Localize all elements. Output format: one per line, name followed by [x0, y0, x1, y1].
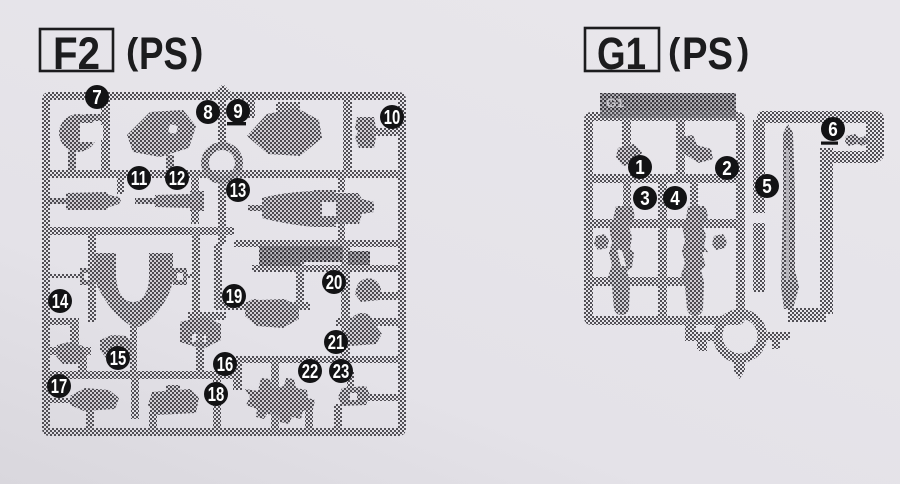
svg-text:18: 18	[208, 384, 225, 406]
svg-text:21: 21	[328, 332, 345, 354]
svg-text:PS: PS	[682, 28, 733, 79]
svg-text:3: 3	[640, 188, 650, 210]
svg-text:4: 4	[670, 188, 680, 210]
svg-text:G1: G1	[597, 28, 646, 79]
svg-text:23: 23	[333, 361, 350, 383]
svg-text:22: 22	[302, 361, 319, 383]
svg-text:1: 1	[635, 157, 645, 179]
svg-text:6: 6	[828, 119, 838, 141]
svg-text:16: 16	[217, 354, 234, 376]
svg-text:12: 12	[169, 168, 186, 190]
svg-text:PS: PS	[139, 28, 188, 79]
svg-text:8: 8	[203, 102, 213, 124]
svg-text:): )	[191, 31, 203, 72]
svg-text:G1: G1	[606, 96, 624, 110]
svg-text:7: 7	[92, 87, 102, 109]
svg-text:5: 5	[762, 176, 772, 198]
svg-text:F2: F2	[53, 28, 100, 79]
svg-text:14: 14	[52, 291, 69, 313]
svg-text:2: 2	[722, 158, 732, 180]
svg-text:9: 9	[233, 101, 243, 123]
svg-text:20: 20	[326, 272, 343, 294]
svg-text:(: (	[668, 31, 681, 72]
svg-text:15: 15	[110, 348, 127, 370]
svg-text:17: 17	[51, 376, 68, 398]
svg-text:13: 13	[230, 180, 247, 202]
svg-text:11: 11	[131, 168, 148, 190]
svg-text:): )	[737, 31, 749, 72]
svg-text:(: (	[126, 31, 139, 72]
svg-text:10: 10	[384, 107, 401, 129]
svg-text:19: 19	[226, 286, 243, 308]
